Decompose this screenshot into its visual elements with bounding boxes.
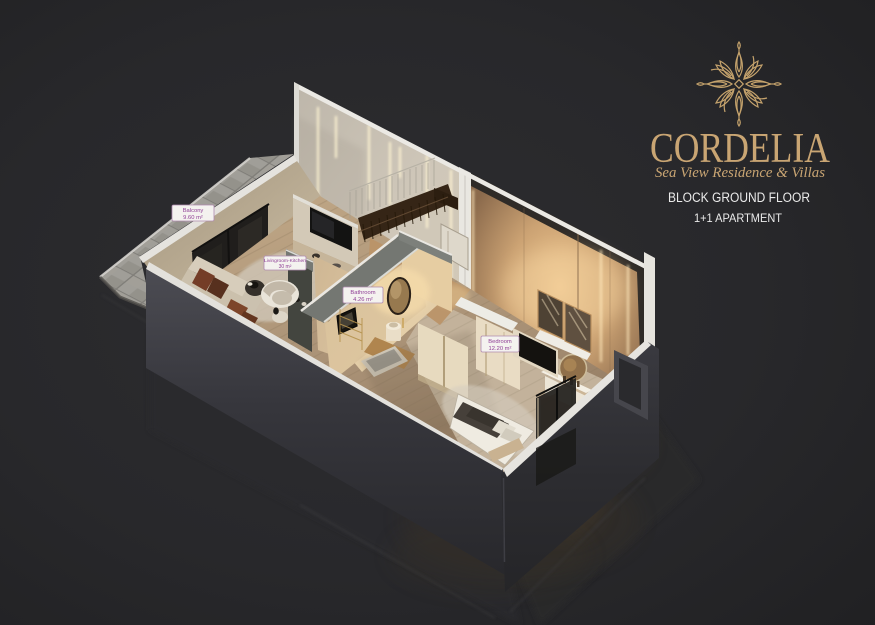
svg-text:4.26 m²: 4.26 m²: [353, 297, 373, 303]
svg-text:Sea View Residence & Villas: Sea View Residence & Villas: [655, 165, 825, 181]
svg-text:Bedroom: Bedroom: [488, 339, 512, 345]
svg-text:12.20 m²: 12.20 m²: [489, 346, 512, 352]
svg-text:Balcony: Balcony: [183, 208, 204, 214]
svg-text:1+1 APARTMENT: 1+1 APARTMENT: [694, 211, 783, 225]
svg-text:9.60 m²: 9.60 m²: [183, 215, 203, 221]
svg-text:BLOCK GROUND FLOOR: BLOCK GROUND FLOOR: [668, 190, 810, 205]
svg-text:Bathroom: Bathroom: [350, 290, 375, 296]
svg-text:30 m²: 30 m²: [279, 264, 292, 270]
